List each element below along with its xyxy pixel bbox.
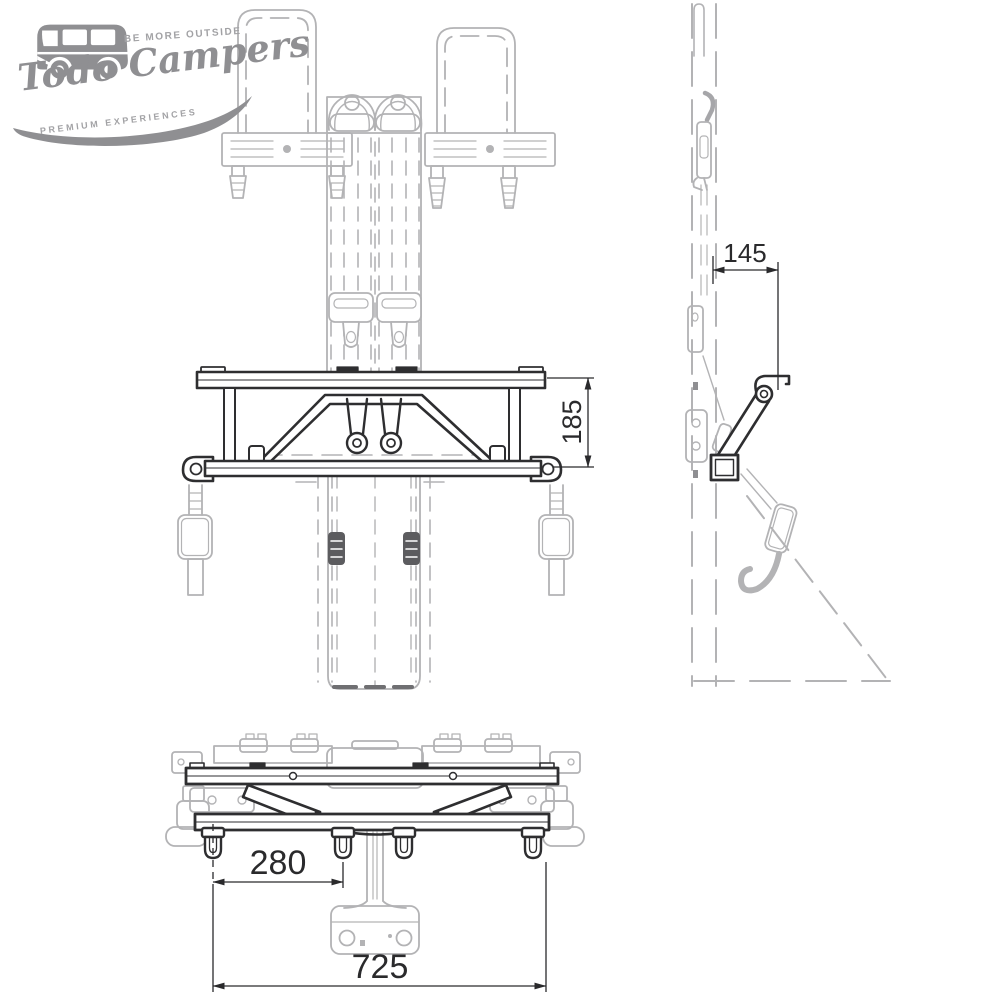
- dimension-side-offset: 145: [713, 238, 778, 390]
- front-view-bracket: [186, 763, 558, 858]
- dim-185-label: 185: [557, 399, 587, 444]
- plan-view-bracket: [183, 367, 561, 481]
- product-drawing-page: 185: [0, 0, 1000, 1000]
- dim-725-label: 725: [352, 948, 409, 986]
- dimension-hook-spacing: 280: [213, 824, 343, 888]
- dim-145-label: 145: [723, 238, 766, 268]
- dimension-plan-depth: 185: [547, 378, 594, 467]
- dim-280-label: 280: [250, 844, 307, 882]
- logo: BE MORE OUTSIDE Todo Campers PREMIUM EXP…: [6, 4, 286, 174]
- side-view-reference-parts: [686, 4, 890, 686]
- side-view-bracket: [711, 376, 789, 480]
